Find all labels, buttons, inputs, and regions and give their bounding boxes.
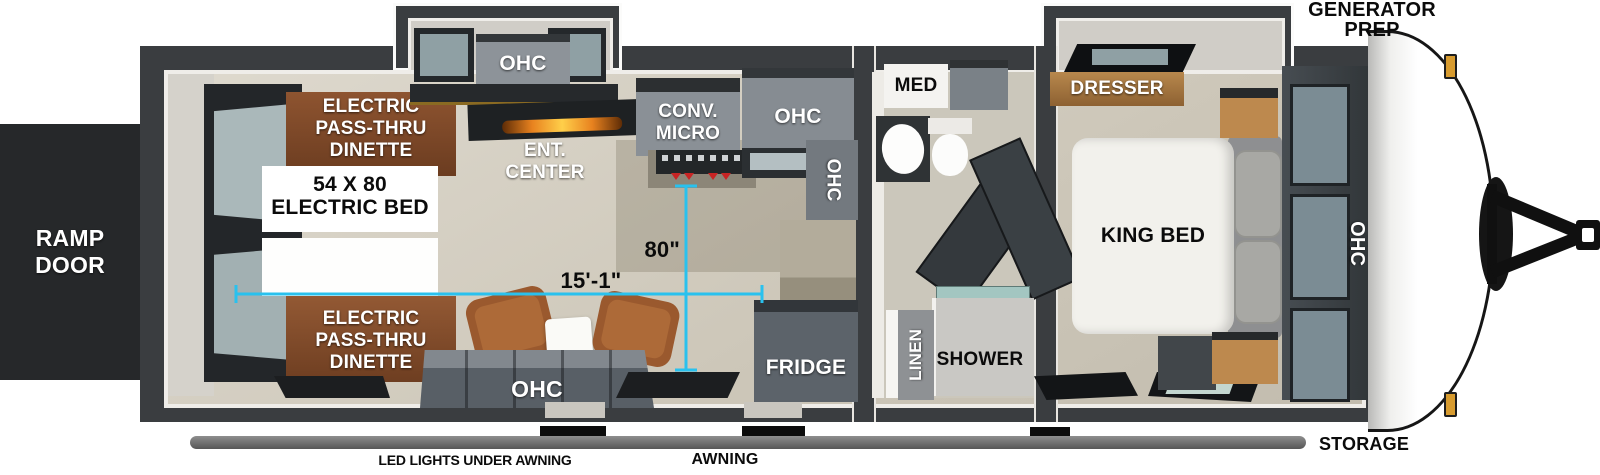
dresser-label: DRESSER [1070, 78, 1163, 100]
recliner-left-cushion [473, 293, 550, 359]
linen-cabinet-trim [886, 310, 898, 398]
slideout-window-left-glass [420, 34, 468, 76]
burner-arrow-3 [708, 173, 718, 180]
dinette-bottom-label-line2: PASS-THRU [286, 330, 456, 352]
conv-micro-label-line1: CONV. [656, 101, 720, 123]
bedroom-slideout-window-glass [1092, 49, 1168, 65]
entertainment-cabinet [467, 99, 640, 141]
fireplace-glow [502, 117, 622, 134]
kitchen-side-ohc-label: OHC [821, 159, 843, 202]
storage-label: STORAGE [1319, 435, 1409, 454]
dimension-80-label: 80" [644, 237, 680, 262]
toilet-tank [928, 118, 972, 134]
nightstand-top [1220, 88, 1278, 138]
bathroom-upper-cabinet [950, 60, 1008, 110]
nightstand-bottom [1212, 332, 1278, 384]
ramp-door-label-line1: RAMP [35, 225, 105, 252]
dimension-15ft1-callout: 15'-1" [533, 270, 649, 292]
floor-mat-rear [274, 376, 390, 398]
wardrobe-window-3 [1290, 308, 1350, 402]
generator-prep-label-line1: GENERATOR [1297, 0, 1447, 20]
front-ohc-label: OHC [1345, 221, 1368, 266]
slideout-overhead-cabinet: OHC [476, 34, 570, 88]
dinette-top-label-line2: PASS-THRU [286, 118, 456, 140]
fridge-label: FRIDGE [766, 322, 847, 380]
electric-bed-label-line2: ELECTRIC BED [262, 197, 438, 220]
refrigerator: FRIDGE [754, 300, 858, 402]
entry-floor-mat [616, 372, 740, 398]
awning-callout: AWNING [660, 450, 790, 470]
awning-bar [190, 436, 1306, 449]
awning-label: AWNING [692, 451, 759, 468]
electric-bed-platform [262, 238, 438, 296]
med-label: MED [895, 76, 938, 97]
pillow-top [1234, 150, 1282, 238]
shower-callout: SHOWER [928, 350, 1032, 370]
wardrobe-window-1 [1290, 84, 1350, 186]
toilet-bowl [932, 134, 968, 176]
slideout-window-left [414, 28, 474, 82]
ramp-door-label-line2: DOOR [35, 252, 105, 279]
floorplan-canvas: RAMP DOOR ELECTRIC PASS-THRU DINETTE 54 … [0, 0, 1600, 475]
king-bed-label: KING BED [1101, 225, 1205, 248]
generator-prep-callout: GENERATOR PREP [1297, 0, 1447, 42]
bed-foot-cabinet [1158, 336, 1216, 390]
clearance-light-bottom [1444, 392, 1457, 417]
range-knobs [662, 155, 742, 161]
pillow-bottom [1234, 240, 1282, 324]
entry-door-left [545, 402, 605, 418]
ent-center-label-line1: ENT. [470, 140, 620, 162]
dimension-15ft1-label: 15'-1" [561, 269, 622, 293]
led-lights-label: LED LIGHTS UNDER AWNING [378, 453, 571, 468]
convection-microwave: CONV. MICRO [636, 78, 740, 156]
generator-prep-label-line2: PREP [1297, 20, 1447, 40]
electric-bed-callout: 54 X 80 ELECTRIC BED [262, 166, 438, 232]
shower-label: SHOWER [937, 350, 1024, 371]
medicine-cabinet: MED [884, 64, 948, 108]
clearance-light-top [1444, 54, 1457, 79]
slideout-ohc-label: OHC [499, 46, 546, 76]
ent-center-label-line2: CENTER [470, 162, 620, 184]
kitchen-corner-counter [780, 220, 856, 302]
burner-arrow-1 [671, 173, 681, 180]
kitchen-side-cabinet: OHC [806, 140, 858, 220]
dinette-bottom-label-line1: ELECTRIC [286, 308, 456, 330]
dresser: DRESSER [1050, 72, 1184, 106]
shower-base [932, 298, 1034, 396]
entertainment-center-callout: ENT. CENTER [470, 140, 620, 184]
kitchen-upper-ohc-label: OHC [774, 91, 821, 129]
entry-door-right [744, 402, 802, 418]
burner-arrow-2 [684, 173, 694, 180]
linen-label: LINEN [906, 329, 926, 381]
bottom-ohc-label: OHC [511, 356, 563, 403]
bottom-overhead-cabinet: OHC [420, 350, 654, 408]
dinette-top-label-line3: DINETTE [286, 140, 456, 162]
dimension-80-callout: 80" [616, 238, 680, 260]
bedroom-slideout-window [1064, 44, 1196, 72]
burner-arrow-4 [721, 173, 731, 180]
bedroom-floor-mat-left [1034, 372, 1138, 400]
trailer-hitch [1474, 166, 1600, 306]
conv-micro-label-line2: MICRO [656, 123, 720, 145]
storage-callout: STORAGE [1308, 435, 1420, 455]
led-lights-callout: LED LIGHTS UNDER AWNING [350, 452, 600, 470]
ramp-door-panel: RAMP DOOR [0, 124, 140, 380]
electric-bed-label-line1: 54 X 80 [262, 174, 438, 197]
range-cooktop [656, 150, 748, 174]
king-bed: KING BED [1072, 138, 1234, 334]
